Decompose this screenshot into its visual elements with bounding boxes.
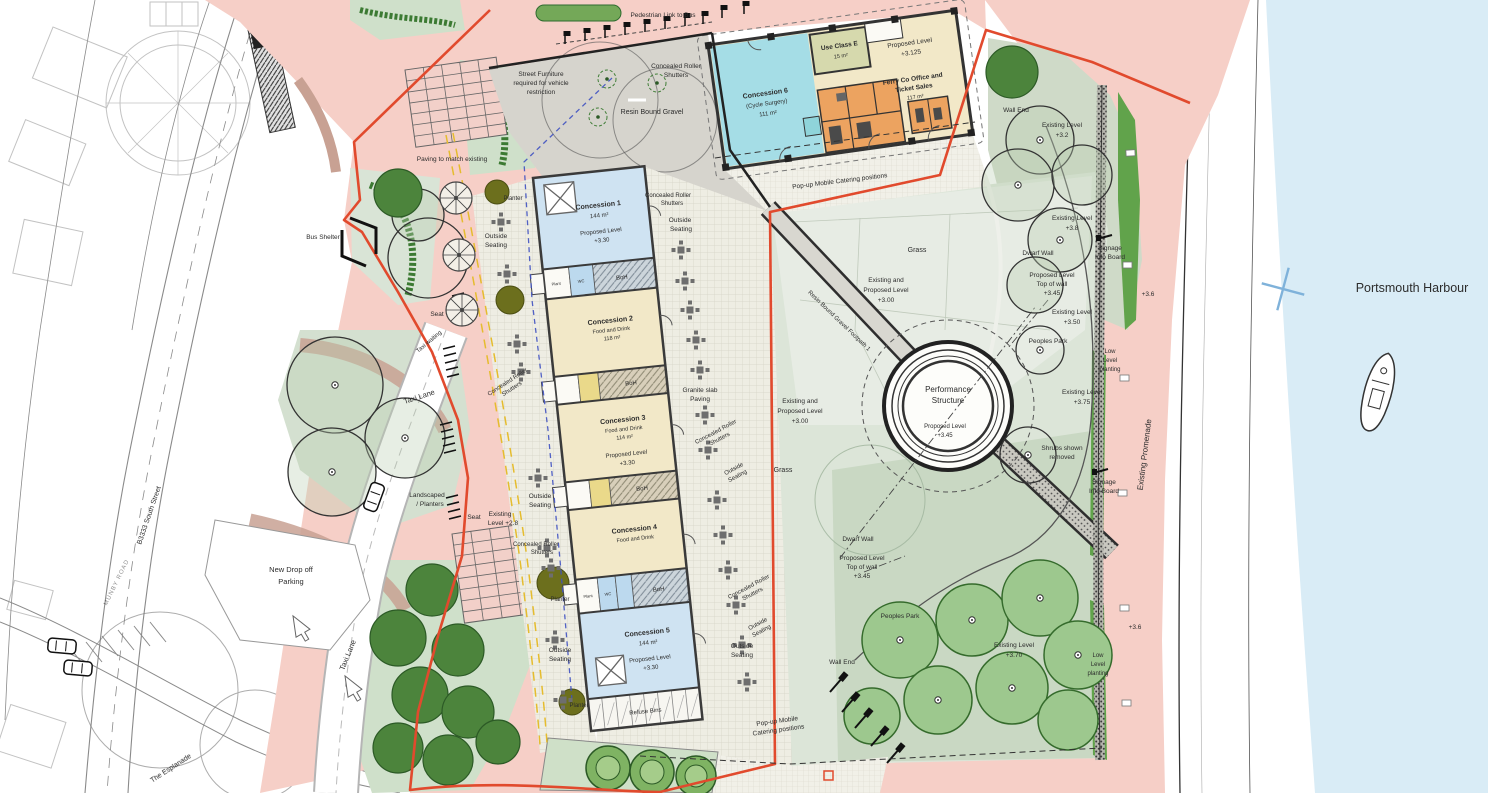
level-300-label: Existing and [782,398,818,405]
plant-label: Plant [551,281,561,287]
outside-seating-label: Seating [529,502,551,509]
concealed-shutters-label: Concealed Roller [645,193,691,199]
car-icon [47,638,76,654]
existing-level-label: Existing Level [1062,389,1103,396]
wc-label: WC [604,591,611,597]
performance-label: Performance [925,385,971,394]
top-of-wall-label: Top of wall [1037,281,1068,288]
shrubs-removed-label: Shrubs shown [1041,445,1083,452]
paving-match-label: Paving to match existing [417,156,488,163]
top-of-wall-label: +3.45 [854,573,871,580]
signage-board-label: Info Board [1089,488,1119,495]
boh-label: BoH [625,380,637,387]
shrubs-removed-label: removed [1049,454,1075,461]
bus-shelter-label: Bus Shelter [306,234,340,241]
existing-level-label: Existing Level [994,642,1035,649]
outside-seating-label: Seating [485,242,507,249]
performance-label: Structure [932,396,965,405]
parasol-icon [443,239,475,271]
street-furniture-label-2: required for vehicle [513,80,569,87]
low-level-planting-label: Level [1091,662,1105,668]
resin-gravel-label: Resin Bound Gravel [621,109,684,116]
existing-level-label: Existing Level [1052,309,1093,316]
level-300-label: +3.00 [792,418,809,425]
existing-level-value: +3.2 [1056,132,1069,139]
peoples-park-label: Peoples Park [1029,338,1068,345]
existing-level-value: +3.75 [1074,399,1091,406]
concealed-shutters-label: Shutters [531,550,553,556]
existing-level-value: +3.50 [1064,319,1081,326]
outside-seating-label: Outside [485,233,508,240]
wc-label: WC [577,278,584,284]
boh-label: BoH [616,275,628,282]
low-level-planting-label: Level [1103,358,1117,364]
grass-label: Grass [774,467,793,474]
concealed-shutters-label: Shutters [664,72,689,79]
harbour-label: Portsmouth Harbour [1356,281,1469,295]
existing-level-label: Existing Level [1052,215,1093,222]
planter-label: Planter [569,703,588,709]
dwarf-wall-label: Dwarf Wall [842,536,874,543]
harbour-zone [1179,0,1488,793]
dwarf-wall-label: Dwarf Wall [1022,250,1054,257]
outside-seating-label: Outside [529,493,552,500]
site-plan: Concession 1 144 m² Proposed Level +3.30… [0,0,1488,793]
seat-label: Seat [430,311,444,318]
signage-board-label: Signage [1098,245,1122,252]
granite-paving-label: Paving [690,396,710,403]
level-300-label: Proposed Level [777,408,823,415]
street-furniture-label-1: Street Furniture [518,71,564,78]
concealed-shutters-label: Concealed Roller [513,542,559,548]
spot-level-label: +3.6 [1129,624,1142,631]
existing-level-28-label: Level +2.8 [488,520,519,527]
top-of-wall-label: Proposed Level [839,555,885,562]
granite-paving-label: Granite slab [682,387,717,394]
existing-level-28-label: Existing [489,511,512,518]
planter-label: Planter [503,196,522,202]
boh-label: BoH [636,486,648,493]
level-300-label: Proposed Level [863,287,909,294]
parasol-icon [440,182,472,214]
pedestrian-link-label: Pedestrian Link to Bus [630,12,696,19]
top-of-wall-label: +3.45 [1044,290,1061,297]
landscaped-label: Landscaped [409,492,445,499]
outside-seating-label: Outside [731,643,754,650]
esplanade-label: The Esplanade [150,753,193,785]
boh-label: BoH [653,587,665,594]
level-300-label: Existing and [868,277,904,284]
low-level-planting-label: planting [1099,367,1120,373]
level-300-label: +3.00 [878,297,895,304]
parasol-icon [446,294,478,326]
grass-label: Grass [908,247,927,254]
low-level-planting-label: planting [1087,671,1108,677]
wall-end-label: Wall End [1003,107,1029,114]
performance-level-label: Proposed Level [924,424,966,430]
top-of-wall-label: Top of wall [847,564,878,571]
outside-seating-label: Outside [549,647,572,654]
performance-level: +3.45 [937,433,953,439]
landscaped-label: / Planters [416,501,444,508]
top-of-wall-label: Proposed Level [1029,272,1075,279]
concealed-shutters-label: Concealed Roller [651,63,702,70]
outside-seating-label: Outside [669,217,692,224]
planter-label: Planter [550,597,569,603]
street-furniture-label-3: restriction [527,89,556,96]
outside-seating-label: Seating [549,656,571,663]
signage-board-label: Signage [1092,479,1116,486]
existing-level-value: +3.70 [1006,652,1023,659]
outside-seating-label: Seating [731,652,753,659]
spot-level-label: +3.6 [1142,291,1155,298]
new-dropoff-label: New Drop off [269,565,314,574]
wall-end-label: Wall End [829,659,855,666]
seat-label: Seat [467,514,481,521]
existing-level-label: Existing Level [1042,122,1083,129]
existing-buildings [0,2,310,793]
signage-board-label: Info Board [1095,254,1125,261]
low-level-planting-label: Low [1092,653,1104,659]
outside-seating-label: Seating [670,226,692,233]
site-plan-drawing: Concession 1 144 m² Proposed Level +3.30… [0,0,1488,793]
low-level-planting-label: Low [1104,349,1116,355]
plant-label: Plant [583,593,593,599]
concealed-shutters-label: Shutters [661,201,683,207]
car-icon [63,660,92,676]
peoples-park-label: Peoples Park [881,613,920,620]
new-dropoff-label: Parking [278,577,303,586]
existing-level-value: +3.8 [1066,225,1079,232]
